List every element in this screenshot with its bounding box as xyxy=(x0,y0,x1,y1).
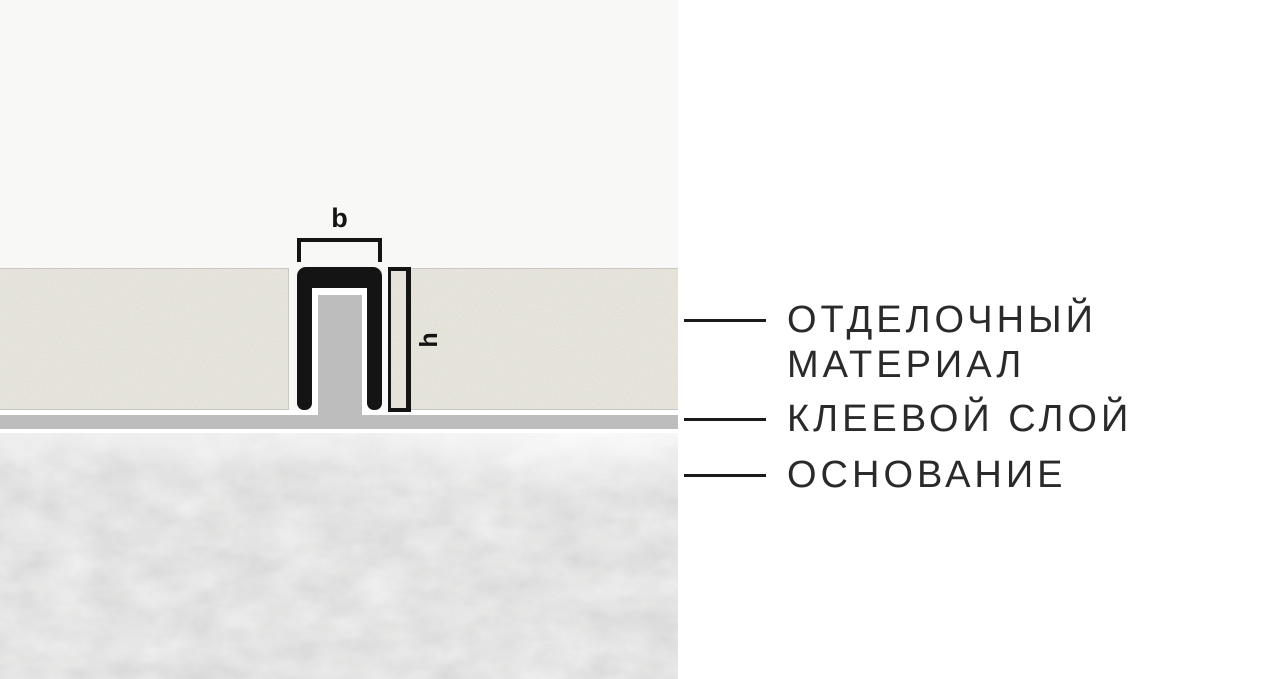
width-dimension-bracket xyxy=(297,238,382,262)
leader-line-base xyxy=(684,474,766,477)
label-adhesive-layer: КЛЕЕВОЙ СЛОЙ xyxy=(787,397,1132,442)
stipple-texture xyxy=(0,269,289,410)
label-finishing-material-line2: МАТЕРИАЛ xyxy=(787,343,1097,388)
profile-left-leg xyxy=(297,278,312,410)
finishing-material-layer-left xyxy=(0,268,289,410)
label-base: ОСНОВАНИЕ xyxy=(787,453,1067,498)
width-dimension-label: b xyxy=(297,202,382,234)
label-finishing-material-line1: ОТДЕЛОЧНЫЙ xyxy=(787,298,1097,343)
height-dimension-label: h xyxy=(413,324,445,356)
leader-line-adhesive-layer xyxy=(684,418,766,421)
concrete-light-haze xyxy=(0,433,678,679)
leader-line-finishing-material xyxy=(684,319,766,322)
cross-section-diagram: b h xyxy=(0,0,678,679)
profile-installation-infographic: b h ОТДЕЛОЧНЫЙ МАТЕРИАЛ КЛЕЕВОЙ СЛОЙ ОСН… xyxy=(0,0,1280,679)
label-finishing-material: ОТДЕЛОЧНЫЙ МАТЕРИАЛ xyxy=(787,298,1097,388)
profile-right-leg xyxy=(367,278,382,410)
height-dimension-bracket xyxy=(388,267,411,412)
joint-filler-column xyxy=(318,295,362,429)
substrate-base-layer xyxy=(0,433,678,679)
